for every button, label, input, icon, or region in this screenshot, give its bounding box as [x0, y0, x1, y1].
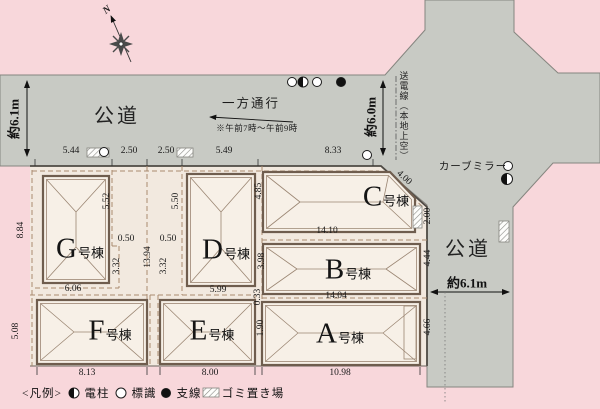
- lot-label-a: A号棟: [316, 318, 364, 351]
- dim-f-bottom: 8.13: [79, 368, 96, 378]
- dim-cb-boundary: 14.10: [316, 226, 337, 236]
- lot-label-g: G号棟: [56, 233, 104, 266]
- lot-suffix: 号棟: [345, 264, 371, 283]
- lot-label-b: B号棟: [325, 254, 371, 287]
- dim-a-right: 4.66: [423, 319, 433, 336]
- dim-g-setback: 0.50: [118, 234, 135, 244]
- lot-suffix: 号棟: [224, 244, 250, 263]
- lot-suffix: 号棟: [208, 325, 234, 344]
- curve-mirror-label: カーブミラー: [439, 159, 507, 174]
- legend-item-garbage: ゴミ置き場: [222, 385, 285, 401]
- dim-e-bottom: 8.00: [202, 368, 219, 378]
- dim-f-left: 5.08: [11, 323, 21, 340]
- dim-d-bottom: 5.99: [210, 285, 227, 295]
- legend-title: <凡例>: [22, 385, 62, 401]
- lot-suffix: 号棟: [383, 191, 409, 210]
- dim-ea-upper: 0.33: [253, 289, 263, 306]
- dim-d-left-lower: 3.32: [159, 258, 169, 275]
- dim-g-left: 8.84: [16, 222, 26, 239]
- lot-letter: G: [56, 233, 77, 266]
- lot-label-e: E号棟: [190, 315, 235, 348]
- sign-icon: [288, 78, 297, 87]
- lot-letter: F: [88, 315, 104, 348]
- building-g: [43, 176, 109, 283]
- guy-wire-icon: [337, 78, 346, 87]
- utility-pole-icon: [502, 174, 513, 185]
- sign-icon: [363, 151, 372, 160]
- garbage-area-icon: [499, 221, 509, 242]
- sign-icon: [116, 388, 126, 398]
- east-road-width: 約6.1m: [447, 273, 487, 292]
- dim-gap-right: 2.50: [158, 146, 175, 156]
- east-road-label: 公道: [445, 233, 491, 262]
- dim-d-setback: 0.50: [160, 234, 177, 244]
- lot-label-c: C号棟: [363, 181, 409, 214]
- west-road-label: 公道: [94, 100, 140, 129]
- dim-c-right: 2.00: [423, 208, 433, 225]
- dim-corridor: 13.94: [143, 246, 153, 267]
- dim-g-right-upper: 5.52: [102, 193, 112, 210]
- one-way-note: ※午前7時～午前9時: [216, 122, 298, 134]
- dim-gap-left: 2.50: [121, 146, 138, 156]
- lot-label-f: F号棟: [88, 315, 131, 348]
- lot-suffix: 号棟: [78, 243, 104, 262]
- legend-item-sign: 標識: [132, 385, 157, 401]
- north-road-width: 約6.0m: [361, 97, 380, 137]
- lot-suffix: 号棟: [106, 325, 132, 344]
- lot-letter: C: [363, 181, 382, 214]
- legend-item-utility-pole: 電柱: [85, 385, 110, 401]
- lot-letter: E: [190, 315, 208, 348]
- garbage-area-icon: [203, 388, 219, 397]
- utility-pole-icon: [69, 388, 79, 398]
- dim-g-right-lower: 3.32: [112, 258, 122, 275]
- lot-suffix: 号棟: [338, 328, 364, 347]
- garbage-area-icon: [413, 206, 422, 228]
- dim-g-bottom: 6.06: [65, 284, 82, 294]
- building-d: [187, 174, 255, 286]
- garbage-area-icon: [177, 148, 193, 157]
- west-road-width: 約6.1m: [4, 99, 23, 139]
- dim-d-top: 5.49: [216, 146, 233, 156]
- lot-letter: A: [316, 318, 337, 351]
- dim-d-right-lower: 3.98: [257, 253, 267, 270]
- dim-d-left-upper: 5.50: [171, 193, 181, 210]
- north-compass-icon: [109, 16, 133, 62]
- dim-ea-lower: 1.90: [256, 320, 266, 337]
- utility-pole-icon: [298, 77, 308, 87]
- dim-ba-boundary: 14.04: [325, 291, 346, 301]
- one-way-label: 一方通行: [222, 93, 280, 112]
- sign-icon: [313, 78, 322, 87]
- lot-letter: B: [325, 254, 344, 287]
- site-plan-graphics: [0, 0, 600, 409]
- guy-wire-icon: [162, 389, 171, 398]
- dim-b-right: 4.44: [423, 250, 433, 267]
- site-plan: N 公道 約6.1m 一方通行 ※午前7時～午前9時 約6.0m 送電線（本地上…: [0, 0, 600, 409]
- legend-item-guy-wire: 支線: [177, 385, 202, 401]
- power-line-label: 送電線（本地上空）: [398, 71, 411, 161]
- sign-icon: [100, 148, 109, 157]
- dim-g-top: 5.44: [63, 146, 80, 156]
- lot-label-d: D号棟: [202, 234, 250, 267]
- dim-d-right-upper: 4.85: [254, 183, 264, 200]
- dim-a-bottom: 10.98: [329, 368, 350, 378]
- dim-c-top: 8.33: [325, 146, 342, 156]
- lot-letter: D: [202, 234, 223, 267]
